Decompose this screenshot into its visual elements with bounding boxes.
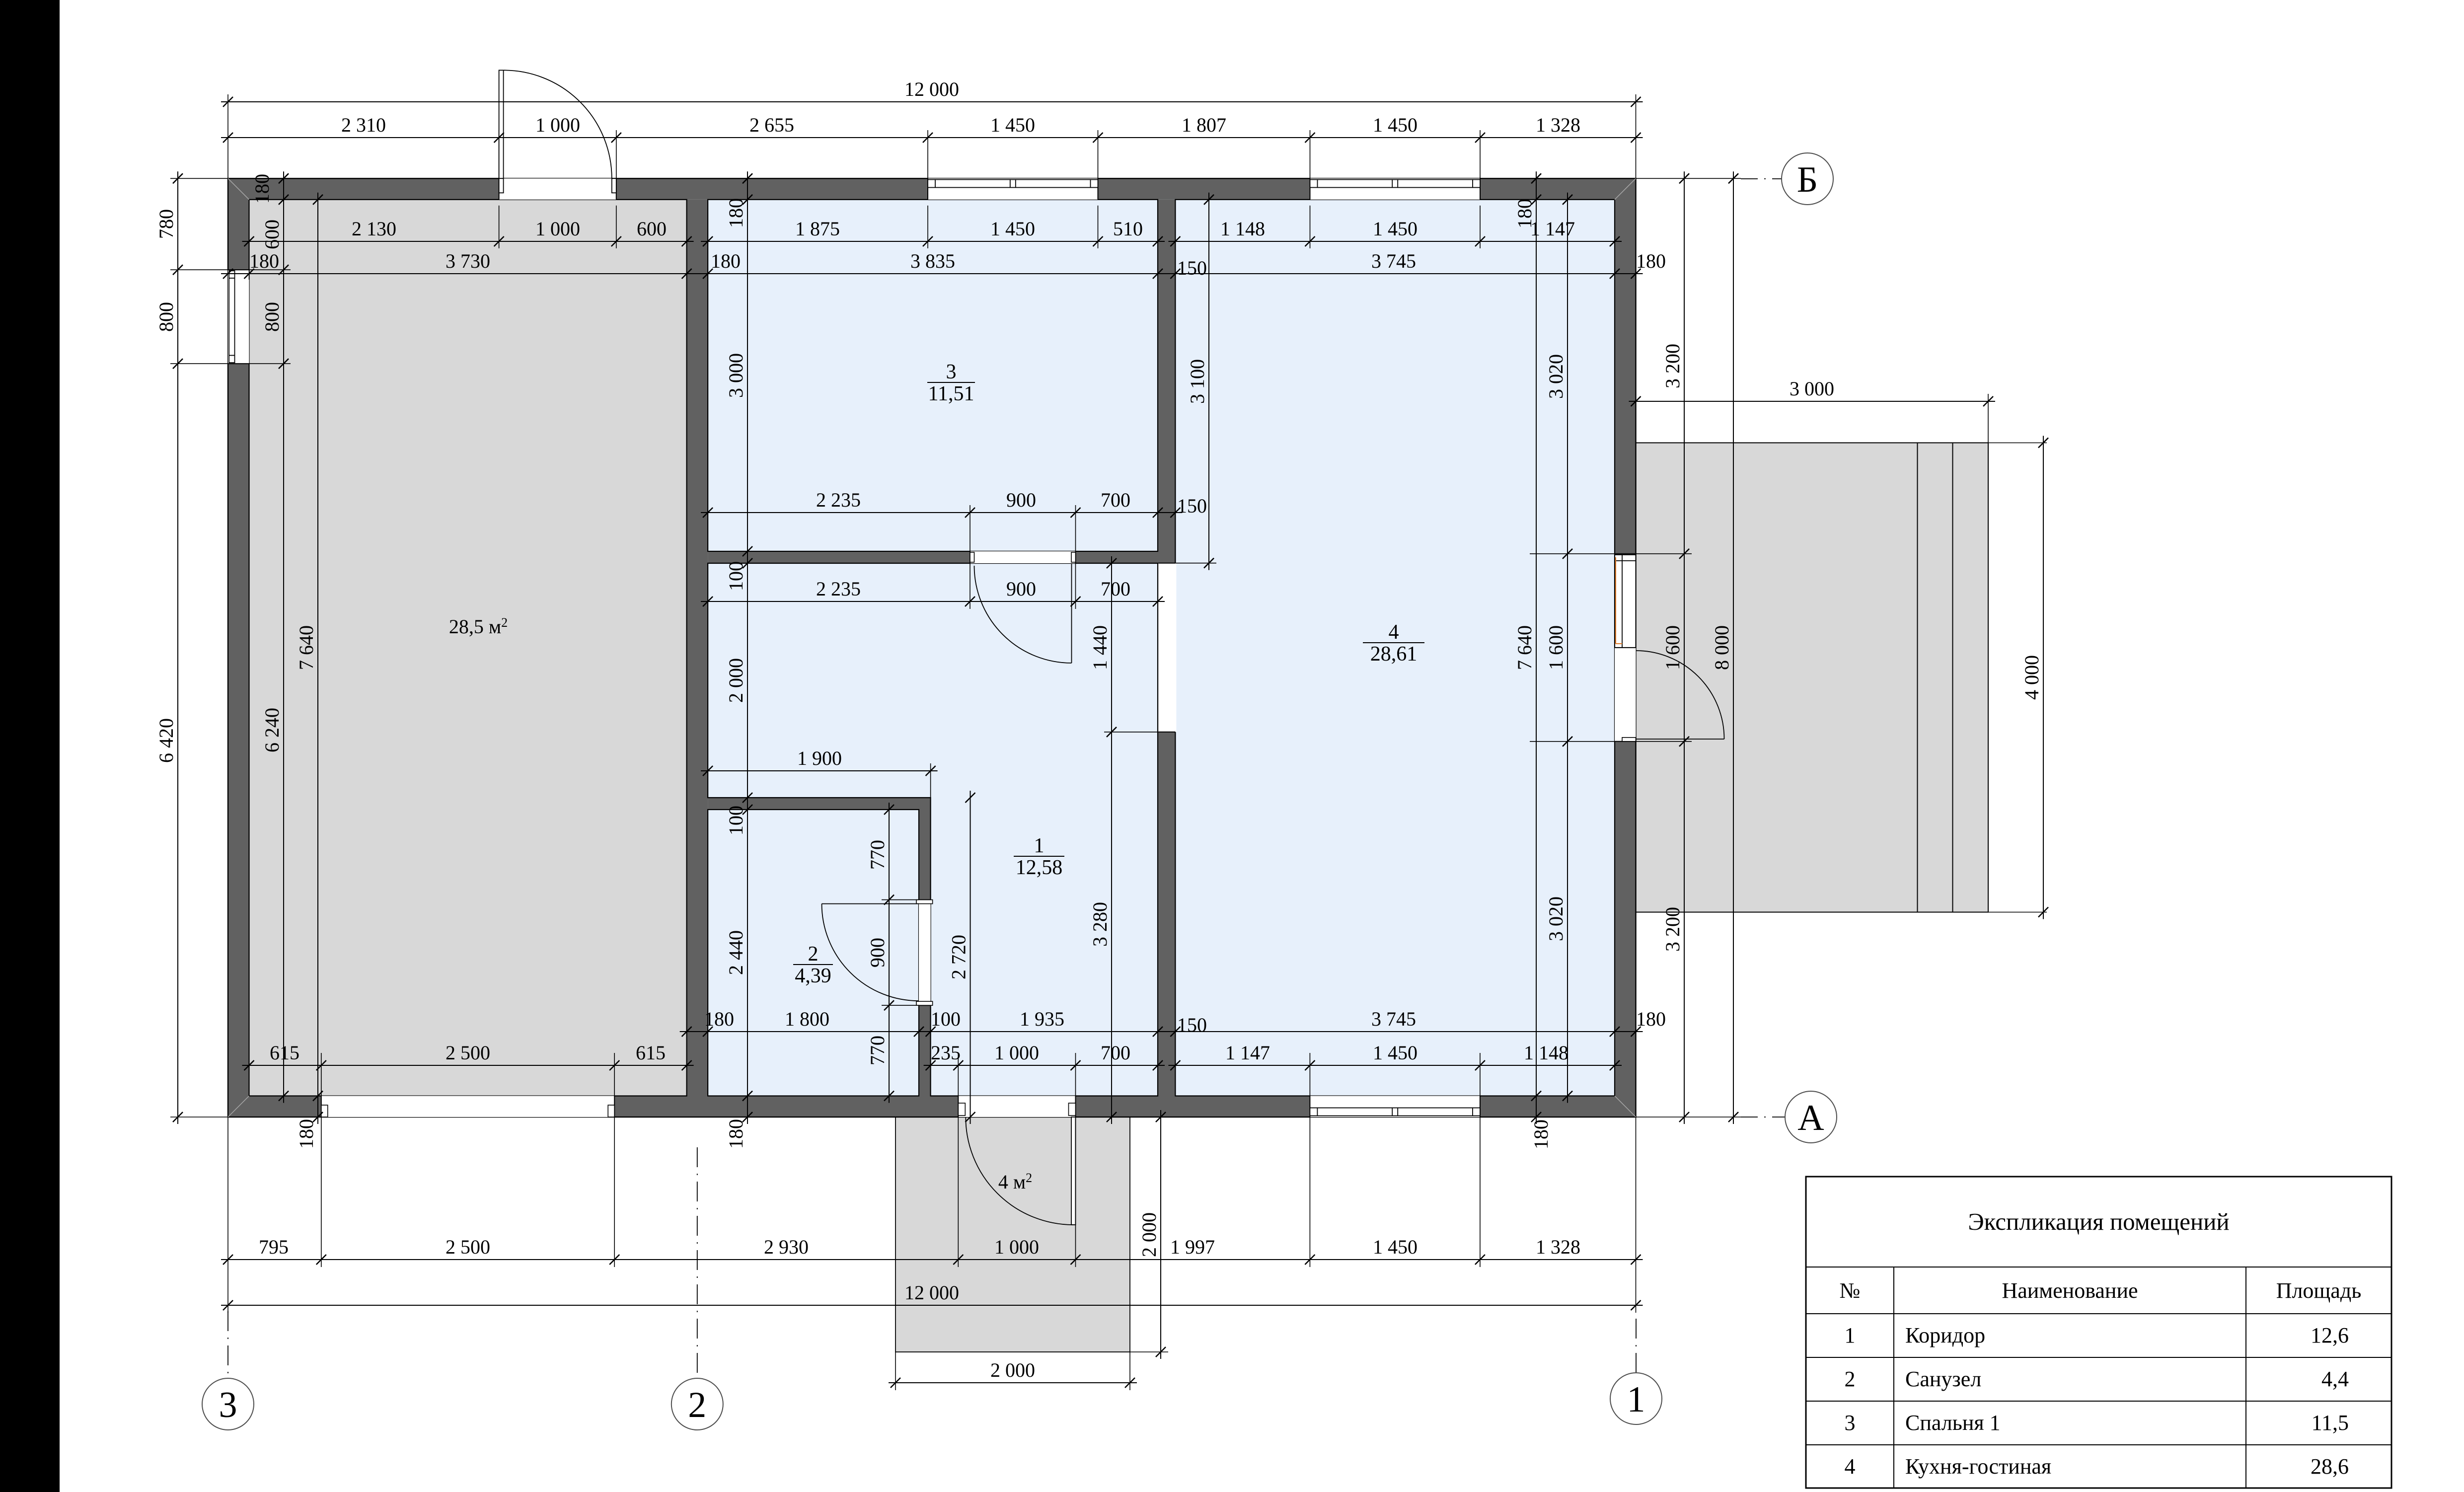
svg-text:900: 900 — [866, 938, 889, 968]
svg-text:6 240: 6 240 — [261, 708, 283, 752]
svg-text:3 730: 3 730 — [446, 250, 490, 272]
svg-text:150: 150 — [1177, 257, 1207, 279]
svg-text:1 328: 1 328 — [1536, 1236, 1580, 1258]
svg-text:1 000: 1 000 — [994, 1042, 1039, 1064]
svg-text:180: 180 — [725, 198, 747, 228]
svg-text:1 875: 1 875 — [795, 218, 840, 240]
svg-text:12 000: 12 000 — [904, 78, 959, 100]
svg-text:1 600: 1 600 — [1545, 625, 1567, 670]
svg-text:2 235: 2 235 — [816, 578, 861, 600]
svg-text:12,58: 12,58 — [1016, 856, 1063, 879]
svg-text:Экспликация помещений: Экспликация помещений — [1968, 1208, 2229, 1235]
svg-text:Кухня-гостиная: Кухня-гостиная — [1905, 1454, 2051, 1479]
svg-text:1 450: 1 450 — [1373, 218, 1418, 240]
svg-text:28,5 м2: 28,5 м2 — [449, 615, 508, 638]
svg-text:770: 770 — [866, 840, 889, 870]
svg-text:180: 180 — [1636, 250, 1666, 272]
svg-text:510: 510 — [1113, 218, 1143, 240]
svg-text:180: 180 — [251, 174, 273, 204]
svg-text:2 130: 2 130 — [352, 218, 396, 240]
svg-text:700: 700 — [1101, 578, 1130, 600]
svg-text:11,5: 11,5 — [2312, 1411, 2349, 1435]
svg-text:12 000: 12 000 — [904, 1281, 959, 1304]
svg-text:800: 800 — [155, 302, 177, 332]
svg-text:1 000: 1 000 — [535, 218, 580, 240]
svg-text:1 147: 1 147 — [1225, 1042, 1270, 1064]
svg-text:4,39: 4,39 — [795, 965, 831, 987]
svg-text:3: 3 — [1845, 1411, 1856, 1435]
svg-text:2 500: 2 500 — [446, 1042, 490, 1064]
svg-text:180: 180 — [249, 250, 279, 272]
svg-text:1 000: 1 000 — [994, 1236, 1039, 1258]
svg-text:2 000: 2 000 — [990, 1359, 1035, 1381]
svg-text:180: 180 — [1530, 1119, 1552, 1149]
svg-text:6 420: 6 420 — [155, 718, 177, 763]
svg-text:Санузел: Санузел — [1905, 1367, 1981, 1391]
svg-text:2 235: 2 235 — [816, 489, 861, 511]
svg-text:1: 1 — [1627, 1379, 1645, 1420]
svg-text:1 807: 1 807 — [1182, 114, 1226, 136]
svg-text:2 000: 2 000 — [1138, 1212, 1160, 1257]
svg-text:1 148: 1 148 — [1220, 218, 1265, 240]
svg-text:1 450: 1 450 — [990, 218, 1035, 240]
svg-text:3 000: 3 000 — [1790, 377, 1834, 400]
svg-text:4 000: 4 000 — [2020, 655, 2043, 700]
svg-text:700: 700 — [1101, 489, 1130, 511]
svg-text:615: 615 — [270, 1042, 299, 1064]
svg-text:180: 180 — [725, 1119, 747, 1149]
svg-text:28,6: 28,6 — [2311, 1454, 2349, 1479]
svg-text:Площадь: Площадь — [2276, 1278, 2362, 1303]
svg-text:100: 100 — [725, 806, 747, 835]
svg-text:1 450: 1 450 — [1373, 1236, 1418, 1258]
svg-text:12,6: 12,6 — [2311, 1323, 2349, 1347]
svg-text:3: 3 — [946, 361, 957, 383]
svg-text:3 000: 3 000 — [725, 353, 747, 398]
svg-text:3 020: 3 020 — [1545, 896, 1567, 941]
svg-text:4,4: 4,4 — [2321, 1367, 2349, 1391]
svg-text:600: 600 — [637, 218, 667, 240]
svg-text:3 745: 3 745 — [1371, 1008, 1416, 1030]
svg-text:2 930: 2 930 — [764, 1236, 809, 1258]
svg-text:7 640: 7 640 — [295, 625, 317, 670]
svg-text:1 328: 1 328 — [1536, 114, 1580, 136]
svg-text:900: 900 — [1006, 578, 1036, 600]
svg-text:1 450: 1 450 — [1373, 114, 1418, 136]
svg-text:780: 780 — [155, 209, 177, 239]
svg-text:900: 900 — [1006, 489, 1036, 511]
svg-text:180: 180 — [711, 250, 741, 272]
svg-text:1 600: 1 600 — [1661, 625, 1684, 670]
svg-text:2: 2 — [688, 1385, 706, 1425]
svg-text:1 900: 1 900 — [797, 747, 842, 769]
svg-text:1 440: 1 440 — [1089, 625, 1111, 670]
svg-text:1 800: 1 800 — [785, 1008, 829, 1030]
svg-text:150: 150 — [1177, 495, 1207, 517]
svg-text:Коридор: Коридор — [1905, 1323, 1985, 1347]
svg-text:180: 180 — [704, 1008, 734, 1030]
svg-text:2 500: 2 500 — [446, 1236, 490, 1258]
svg-text:1: 1 — [1034, 834, 1045, 857]
svg-text:3: 3 — [219, 1385, 237, 1425]
svg-text:1 450: 1 450 — [1373, 1042, 1418, 1064]
svg-text:2 000: 2 000 — [725, 658, 747, 703]
svg-text:100: 100 — [725, 561, 747, 591]
svg-text:7 640: 7 640 — [1513, 625, 1536, 670]
svg-text:1 450: 1 450 — [990, 114, 1035, 136]
svg-text:100: 100 — [931, 1008, 961, 1030]
svg-text:3 835: 3 835 — [910, 250, 955, 272]
svg-text:150: 150 — [1177, 1014, 1207, 1036]
svg-text:3 200: 3 200 — [1661, 344, 1684, 388]
svg-text:770: 770 — [866, 1036, 889, 1065]
svg-text:А: А — [1797, 1098, 1824, 1138]
svg-text:Б: Б — [1797, 159, 1818, 200]
svg-text:180: 180 — [1513, 199, 1536, 228]
svg-text:3 100: 3 100 — [1186, 359, 1208, 404]
svg-text:800: 800 — [261, 302, 283, 332]
svg-text:28,61: 28,61 — [1370, 643, 1418, 666]
svg-text:1 935: 1 935 — [1020, 1008, 1064, 1030]
svg-text:2: 2 — [808, 943, 819, 966]
svg-text:1 997: 1 997 — [1170, 1236, 1215, 1258]
svg-text:615: 615 — [636, 1042, 666, 1064]
svg-text:1: 1 — [1845, 1323, 1856, 1347]
svg-text:3 020: 3 020 — [1545, 354, 1567, 399]
svg-text:3 745: 3 745 — [1371, 250, 1416, 272]
svg-text:2 310: 2 310 — [341, 114, 386, 136]
svg-text:Наименование: Наименование — [2002, 1278, 2138, 1303]
svg-text:№: № — [1840, 1278, 1861, 1303]
svg-text:3 280: 3 280 — [1089, 902, 1111, 947]
svg-text:Спальня 1: Спальня 1 — [1905, 1411, 2001, 1435]
svg-text:2 655: 2 655 — [749, 114, 794, 136]
svg-text:2 440: 2 440 — [725, 930, 747, 975]
svg-text:180: 180 — [1636, 1008, 1666, 1030]
svg-text:2: 2 — [1845, 1367, 1856, 1391]
svg-text:180: 180 — [295, 1119, 317, 1149]
svg-text:1 147: 1 147 — [1530, 218, 1575, 240]
svg-text:11,51: 11,51 — [928, 382, 974, 405]
svg-text:700: 700 — [1101, 1042, 1130, 1064]
svg-text:235: 235 — [931, 1042, 961, 1064]
svg-text:1 000: 1 000 — [535, 114, 580, 136]
svg-text:4: 4 — [1845, 1454, 1856, 1479]
svg-text:3 200: 3 200 — [1661, 907, 1684, 952]
svg-text:4: 4 — [1389, 621, 1399, 644]
svg-text:2 720: 2 720 — [948, 935, 970, 979]
svg-text:795: 795 — [259, 1236, 289, 1258]
svg-text:8 000: 8 000 — [1711, 625, 1733, 670]
svg-text:600: 600 — [261, 220, 283, 249]
svg-text:1 148: 1 148 — [1524, 1042, 1568, 1064]
